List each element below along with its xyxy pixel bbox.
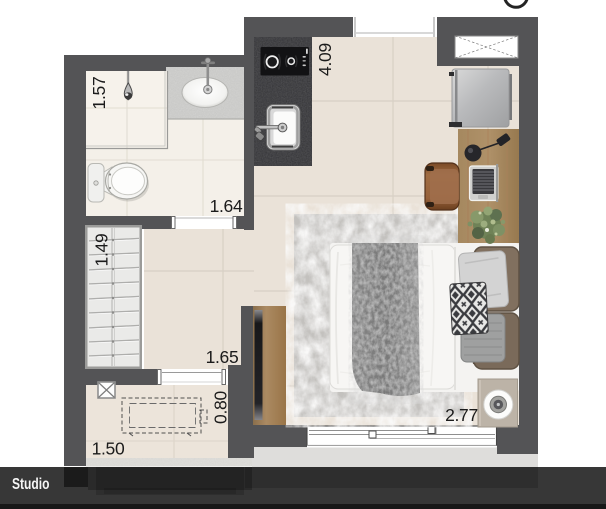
svg-text:1.64: 1.64	[210, 196, 243, 216]
svg-text:2.77: 2.77	[445, 405, 478, 425]
svg-text:4.09: 4.09	[315, 43, 335, 76]
svg-text:0.80: 0.80	[211, 391, 231, 424]
svg-text:Studio: Studio	[12, 476, 50, 493]
svg-text:1.49: 1.49	[92, 234, 112, 267]
svg-text:1.57: 1.57	[89, 77, 109, 110]
svg-text:1.65: 1.65	[206, 347, 239, 367]
svg-text:1.50: 1.50	[92, 439, 125, 459]
